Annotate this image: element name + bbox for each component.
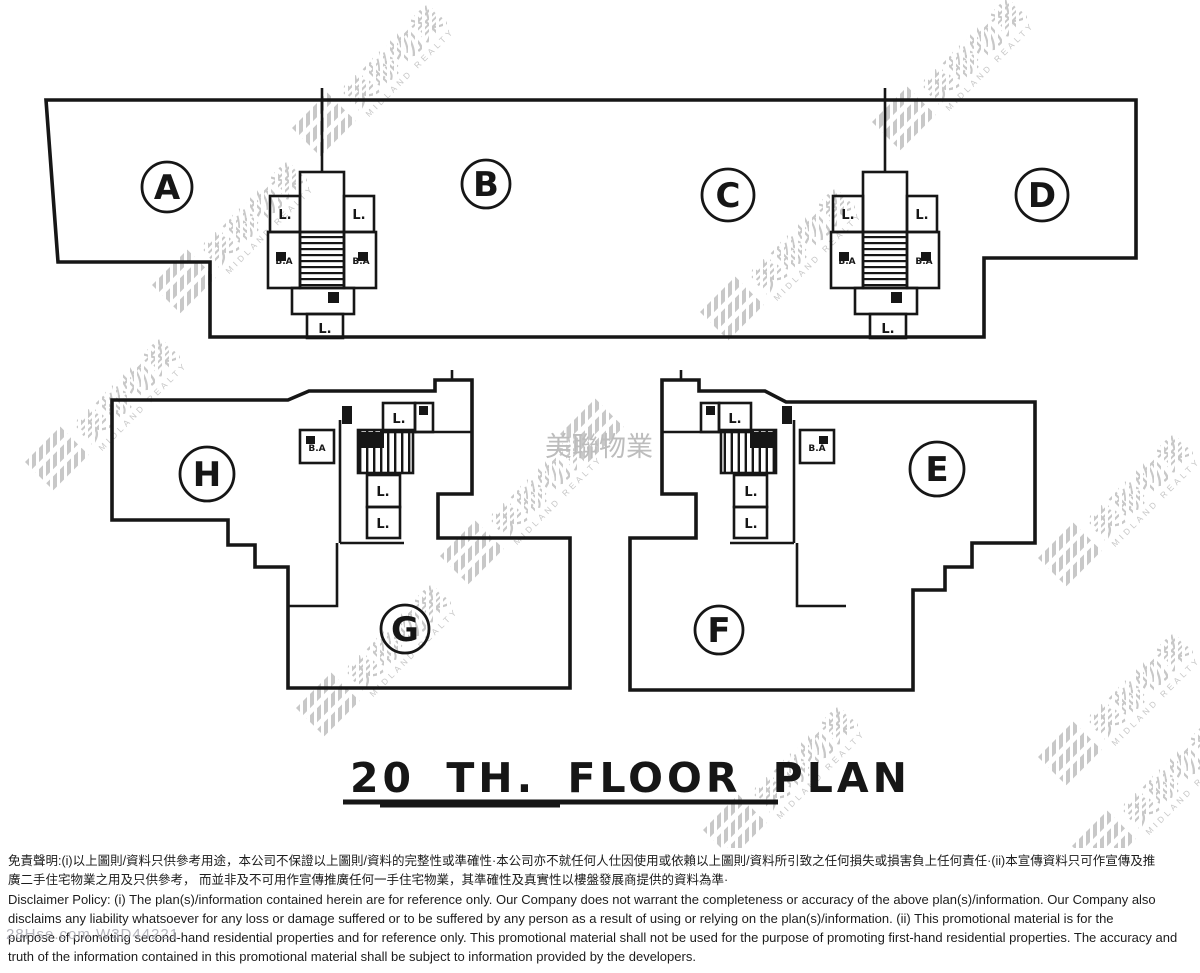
unit-letter: F: [707, 611, 730, 651]
unit-letter: D: [1028, 176, 1056, 216]
room-label-lift: L.: [376, 485, 389, 500]
midland-watermark: [1038, 426, 1200, 592]
unit-label-f: F: [695, 606, 743, 654]
tower-outline-lower-right: [630, 380, 1035, 690]
disclaimer-en-line2: disclaims any liability whatsoever for a…: [8, 909, 1198, 928]
room-label-lift: L.: [841, 208, 854, 223]
disclaimer-en-line3: purpose of promoting second-hand residen…: [8, 928, 1198, 947]
room-label-bath: B.A: [275, 257, 292, 267]
midland-watermark: [872, 0, 1038, 157]
unit-letter: H: [193, 455, 221, 495]
room-label-lift: L.: [744, 517, 757, 532]
unit-label-d: D: [1016, 169, 1068, 221]
midland-watermark: [25, 330, 191, 496]
disclaimer-en-line1: Disclaimer Policy: (i) The plan(s)/infor…: [8, 890, 1198, 909]
room-label-bath: B.A: [352, 257, 369, 267]
corridor-partition: [288, 543, 337, 606]
unit-letter: E: [925, 450, 948, 490]
disclaimer-zh-line2: 廣二手住宅物業之用及只供參考， 而並非及不可用作宣傳推廣任何一手住宅物業，其準確…: [8, 871, 1198, 890]
room-label-lift: L.: [744, 485, 757, 500]
room-label-lift: L.: [728, 412, 741, 427]
floor-title-group: 20 TH. FLOOR PLAN: [343, 754, 911, 806]
watermark-cjk-text: 美聯物業: [545, 432, 653, 462]
midland-watermark: [292, 0, 458, 163]
unit-label-e: E: [910, 442, 964, 496]
unit-label-layer: A B C D H E G F: [142, 160, 1068, 654]
room-label-layer: L. L. L. L. L. L. B.A B.A B.A B.A L. L. …: [275, 208, 932, 532]
lower-right-block: [630, 370, 1035, 690]
room-label-bath: B.A: [838, 257, 855, 267]
unit-label-h: H: [180, 447, 234, 501]
unit-label-c: C: [702, 169, 754, 221]
upper-tower-block: [46, 88, 1136, 338]
disclaimer-zh-line1: 免責聲明:(i)以上圖則/資料只供參考用途，本公司不保證以上圖則/資料的完整性或…: [8, 852, 1198, 871]
disclaimer-en-line4: truth of the information contained in th…: [8, 947, 1198, 966]
room-label-lift: L.: [392, 412, 405, 427]
corridor-partition: [797, 543, 846, 606]
disclaimer-block: 免責聲明:(i)以上圖則/資料只供參考用途，本公司不保證以上圖則/資料的完整性或…: [8, 852, 1198, 966]
unit-letter: A: [154, 168, 181, 208]
floor-plan-canvas: 美聯物業 MIDLAND REALTY: [0, 0, 1200, 848]
room-label-bath: B.A: [808, 444, 825, 454]
midland-watermark: [296, 576, 462, 742]
unit-label-a: A: [142, 162, 192, 212]
site-ref-watermark: 28Hse.com W3D44221: [6, 926, 179, 943]
unit-letter: B: [473, 165, 499, 205]
page-title: 20 TH. FLOOR PLAN: [350, 754, 911, 802]
unit-letter: G: [391, 610, 419, 650]
room-label-lift: L.: [352, 208, 365, 223]
room-label-lift: L.: [881, 322, 894, 337]
room-label-lift: L.: [376, 517, 389, 532]
room-label-bath: B.A: [308, 444, 325, 454]
room-label-lift: L.: [318, 322, 331, 337]
room-label-lift: L.: [278, 208, 291, 223]
unit-letter: C: [716, 176, 741, 216]
midland-watermark: [1072, 714, 1200, 848]
watermark-layer: 美聯物業: [25, 0, 1200, 848]
unit-label-b: B: [462, 160, 510, 208]
room-label-lift: L.: [915, 208, 928, 223]
room-label-bath: B.A: [915, 257, 932, 267]
tower-outline-upper: [46, 100, 1136, 337]
